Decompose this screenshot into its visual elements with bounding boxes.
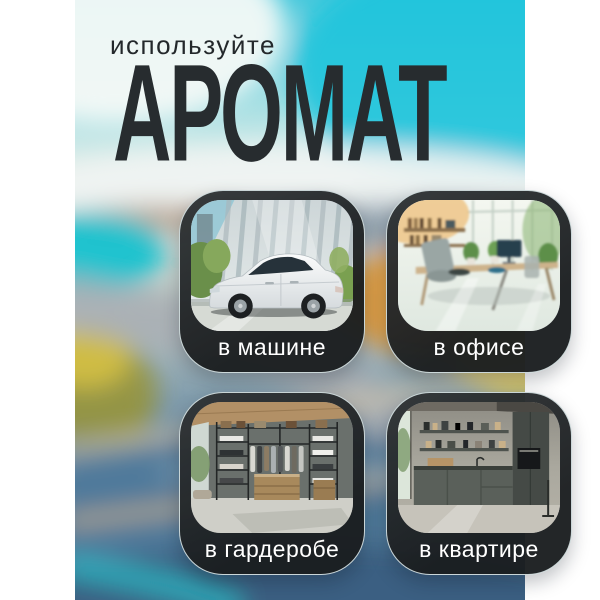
car-photo-illustration — [191, 200, 353, 331]
poster-canvas: используйте АРОМАТ — [0, 0, 600, 600]
usage-card-label: в машине — [180, 334, 364, 361]
usage-card-wardrobe: в гардеробе — [179, 392, 365, 575]
poster-title: АРОМАТ — [113, 44, 488, 182]
apartment-photo — [398, 402, 560, 533]
usage-card-label: в офисе — [387, 334, 571, 361]
apartment-photo-illustration — [398, 402, 560, 533]
usage-card-office: в офисе — [386, 190, 572, 373]
car-photo — [191, 200, 353, 331]
poster-content: используйте АРОМАТ — [75, 0, 525, 600]
usage-card-label: в гардеробе — [180, 536, 364, 563]
usage-card-car: в машине — [179, 190, 365, 373]
wardrobe-photo — [191, 402, 353, 533]
usage-card-apartment: в квартире — [386, 392, 572, 575]
wardrobe-photo-illustration — [191, 402, 353, 533]
office-photo — [398, 200, 560, 331]
usage-card-label: в квартире — [387, 536, 571, 563]
office-photo-illustration — [398, 200, 560, 331]
